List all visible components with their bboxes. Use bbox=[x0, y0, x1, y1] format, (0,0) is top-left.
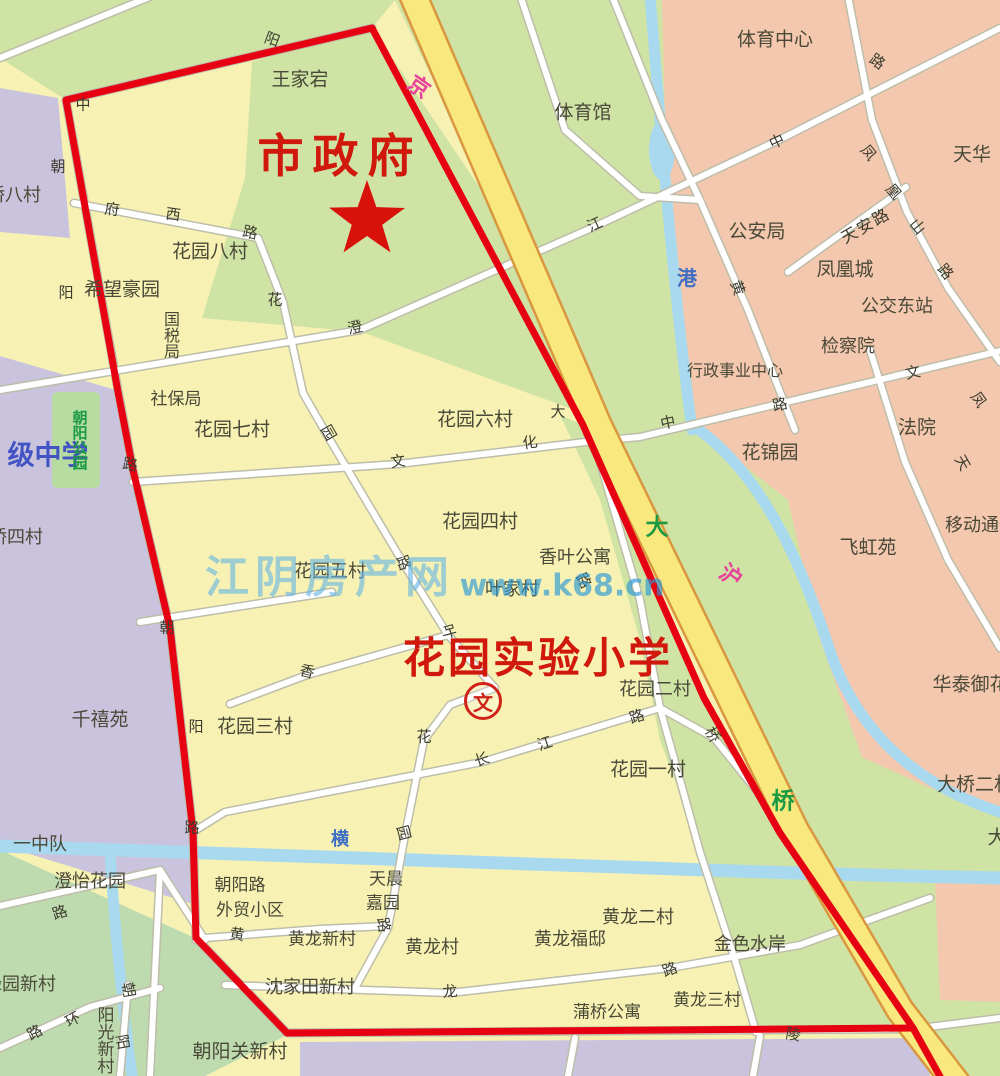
map-canvas bbox=[0, 0, 1000, 1076]
pink-area-southeast bbox=[935, 878, 1000, 1002]
watermark-site-name: 江阴房产网 bbox=[205, 541, 455, 605]
city-government-label: 市政府 bbox=[258, 120, 423, 186]
chaoyang-park bbox=[52, 392, 100, 488]
school-label: 花园实验小学 bbox=[403, 625, 673, 686]
district-map: 王家宕体育中心体育馆天华公安局凤凰城公交东站检察院行政事业中心法院花锦园飞虹苑移… bbox=[0, 0, 1000, 1076]
watermark-site-url: www.k68.cn bbox=[460, 569, 665, 604]
school-symbol-icon: 文 bbox=[464, 682, 502, 720]
purple-block-south bbox=[300, 1038, 930, 1076]
